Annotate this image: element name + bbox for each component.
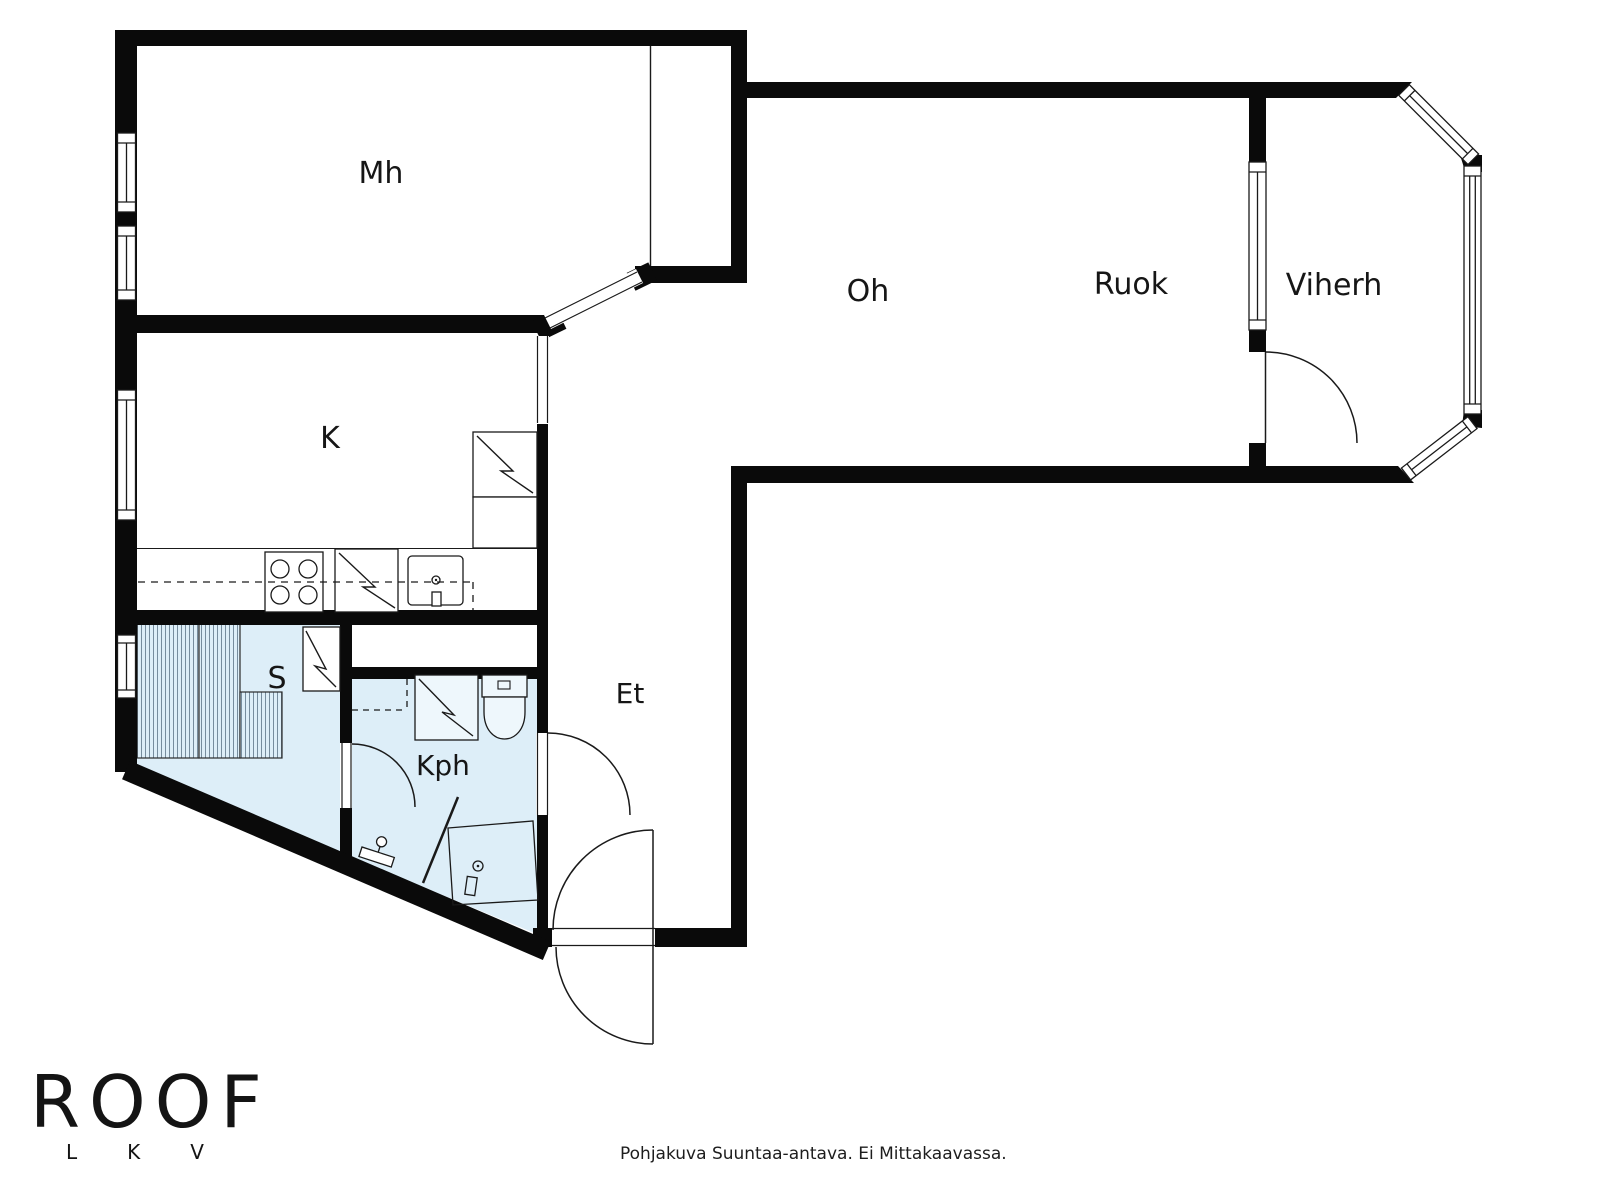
window-kitchen bbox=[118, 390, 136, 520]
kitchen-fixtures bbox=[137, 432, 537, 612]
door-dining-conservatory bbox=[1248, 352, 1357, 443]
sauna-bench bbox=[199, 623, 240, 758]
sink-icon bbox=[408, 556, 463, 606]
dishwasher-icon bbox=[335, 549, 398, 612]
window-sauna bbox=[118, 635, 136, 698]
sauna-heater-icon bbox=[303, 627, 340, 691]
room-label-entry-hall: Et bbox=[616, 677, 645, 710]
sauna-bench bbox=[240, 692, 282, 758]
window-bedroom-1 bbox=[118, 133, 136, 212]
door-entrance bbox=[552, 830, 655, 1044]
sauna-bench bbox=[137, 623, 199, 758]
room-label-conservatory: Viherh bbox=[1286, 268, 1383, 303]
floor-plan-svg: Mh K Oh Ruok Viherh S Kph Et bbox=[0, 0, 1600, 1200]
window-bay-right bbox=[1464, 166, 1481, 414]
room-label-kitchen: K bbox=[320, 421, 341, 456]
room-label-bedroom: Mh bbox=[359, 156, 404, 191]
roof-logo: ROOF bbox=[30, 1060, 271, 1144]
opening-bedroom-diagonal bbox=[544, 269, 643, 329]
floor-plan-page: Mh K Oh Ruok Viherh S Kph Et ROOF LKV Po… bbox=[0, 0, 1600, 1200]
door-bathroom-hall bbox=[536, 733, 630, 815]
toilet-icon bbox=[482, 675, 527, 739]
room-label-living-room: Oh bbox=[847, 274, 890, 309]
disclaimer-text: Pohjakuva Suuntaa-antava. Ei Mittakaavas… bbox=[620, 1144, 1007, 1164]
roof-logo-sub: LKV bbox=[66, 1140, 254, 1164]
room-label-sauna: S bbox=[267, 661, 286, 696]
wall-openings bbox=[536, 269, 643, 424]
room-label-dining-room: Ruok bbox=[1094, 267, 1169, 302]
opening-kitchen bbox=[536, 336, 549, 424]
window-dining-partition bbox=[1249, 162, 1266, 330]
window-bedroom-2 bbox=[118, 226, 136, 300]
window-bay-bottom-angled bbox=[1401, 417, 1477, 480]
room-label-bathroom: Kph bbox=[416, 749, 470, 782]
refrigerator-icon bbox=[473, 432, 537, 548]
shower-icon bbox=[415, 675, 478, 740]
sauna-fixtures bbox=[303, 627, 340, 691]
window-bay-top-angled bbox=[1399, 85, 1479, 165]
